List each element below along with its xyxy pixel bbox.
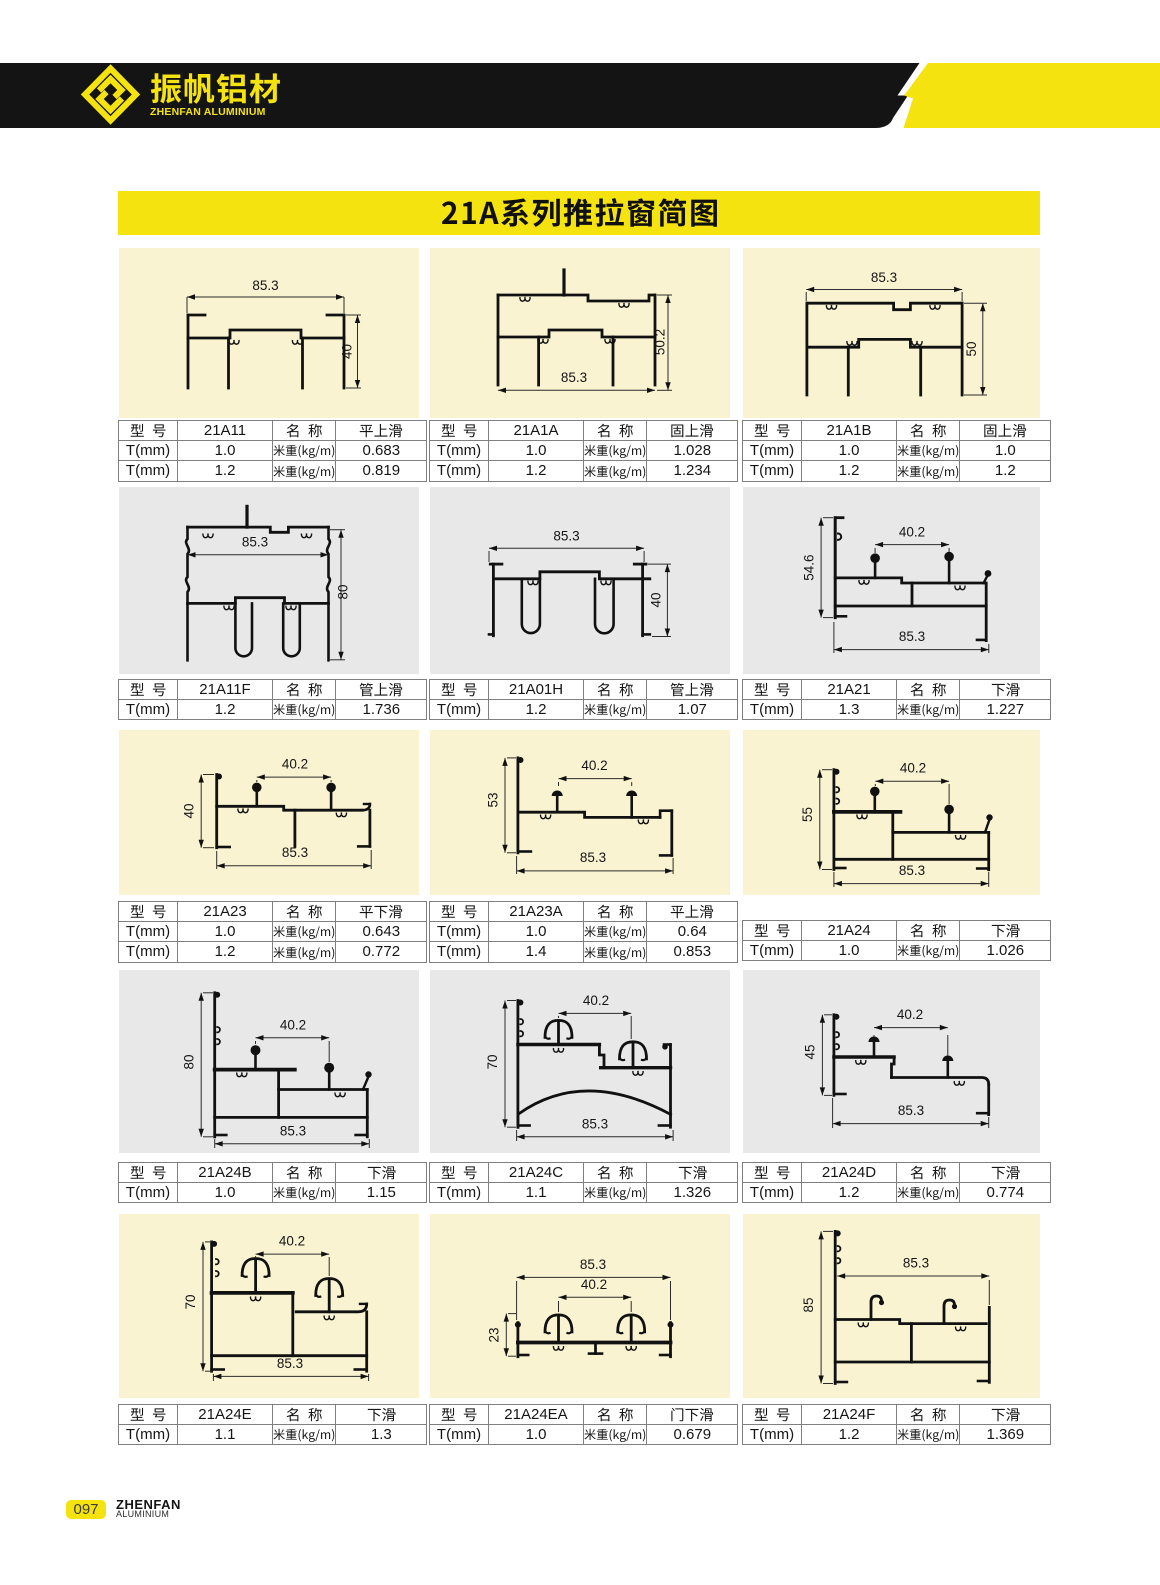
svg-text:40.2: 40.2: [280, 1017, 306, 1032]
svg-text:40.2: 40.2: [900, 761, 926, 776]
svg-text:50: 50: [964, 341, 979, 356]
svg-text:85.3: 85.3: [582, 1116, 608, 1131]
svg-text:40.2: 40.2: [581, 1277, 607, 1292]
svg-text:53: 53: [486, 792, 501, 807]
svg-text:85.3: 85.3: [871, 270, 897, 285]
svg-text:85.3: 85.3: [899, 863, 925, 878]
svg-text:55: 55: [800, 807, 815, 822]
svg-text:70: 70: [183, 1294, 198, 1309]
svg-text:54.6: 54.6: [802, 554, 817, 580]
svg-text:80: 80: [336, 584, 351, 599]
svg-text:40: 40: [182, 803, 197, 818]
svg-text:45: 45: [803, 1044, 818, 1059]
svg-text:85.3: 85.3: [280, 1123, 306, 1138]
svg-text:85.3: 85.3: [282, 845, 308, 860]
svg-text:85.3: 85.3: [277, 1356, 303, 1371]
svg-text:40.2: 40.2: [899, 525, 925, 540]
svg-text:85: 85: [801, 1297, 816, 1312]
svg-text:40.2: 40.2: [897, 1007, 923, 1022]
svg-text:40.2: 40.2: [282, 757, 308, 772]
svg-text:80: 80: [182, 1054, 197, 1069]
svg-text:40.2: 40.2: [583, 993, 609, 1008]
svg-text:40.2: 40.2: [279, 1234, 305, 1249]
svg-text:85.3: 85.3: [580, 1257, 606, 1272]
svg-text:85.3: 85.3: [898, 1103, 924, 1118]
svg-text:85.3: 85.3: [899, 629, 925, 644]
svg-text:40.2: 40.2: [581, 758, 607, 773]
svg-text:85.3: 85.3: [553, 529, 579, 544]
svg-text:40: 40: [340, 344, 355, 359]
svg-text:85.3: 85.3: [580, 850, 606, 865]
svg-text:70: 70: [485, 1054, 500, 1069]
svg-text:85.3: 85.3: [561, 370, 587, 385]
svg-text:40: 40: [649, 592, 664, 607]
svg-text:85.3: 85.3: [903, 1256, 929, 1271]
svg-text:23: 23: [487, 1327, 502, 1342]
svg-text:85.3: 85.3: [242, 535, 268, 550]
svg-text:50.2: 50.2: [653, 329, 668, 355]
svg-text:85.3: 85.3: [252, 278, 278, 293]
